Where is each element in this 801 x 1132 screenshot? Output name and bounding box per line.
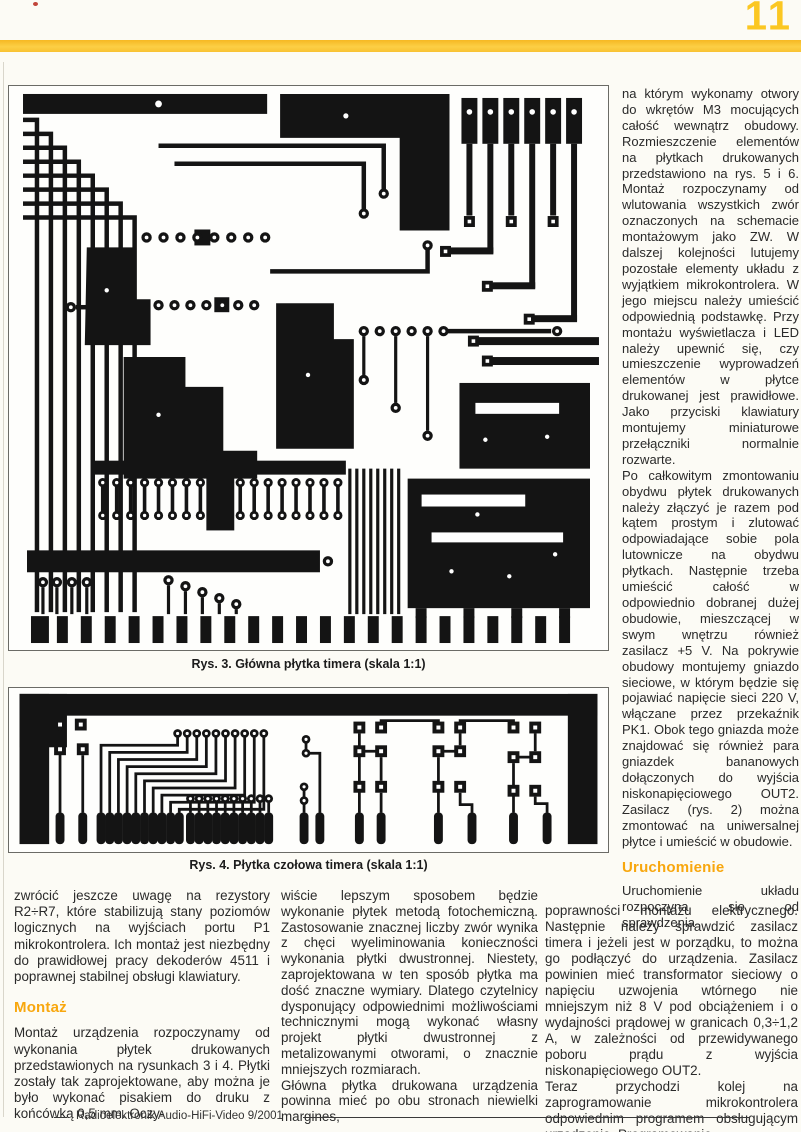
page-number: 11 [745, 0, 793, 39]
footer-text: Radioelektronik Audio-HiFi-Video 9/2001 [76, 1110, 283, 1122]
registration-mark [33, 2, 38, 6]
bottom-column-middle: wiście lepszym sposobem będzie wykonanie… [281, 888, 538, 1125]
bottom-left-paragraph-1: zwrócić jeszcze uwagę na rezystory R2÷R7… [14, 888, 270, 985]
pcb-artwork-rys4 [9, 688, 608, 852]
figure-caption-rys4: Rys. 4. Płytka czołowa timera (skala 1:1… [8, 858, 609, 872]
section-heading-montaz: Montaż [14, 1000, 270, 1016]
right-column-paragraph-1: na którym wykonamy otwory do wkrętów M3 … [622, 86, 799, 468]
pcb-figure-rys4 [8, 687, 609, 853]
scan-edge-line [3, 62, 4, 1117]
right-column: na którym wykonamy otwory do wkrętów M3 … [622, 86, 799, 931]
pcb-figure-rys3 [8, 85, 609, 651]
footer-rule [303, 1117, 750, 1118]
section-heading-uruchomienie: Uruchomienie [622, 860, 799, 876]
bottom-middle-paragraph-1: wiście lepszym sposobem będzie wykonanie… [281, 888, 538, 1078]
bottom-right-paragraph-2: Teraz przychodzi kolej na zaprogramowani… [545, 1079, 798, 1132]
figure-caption-rys3: Rys. 3. Główna płytka timera (skala 1:1) [8, 657, 609, 671]
bottom-column-right: poprawności montażu elektrycznego. Nastę… [545, 903, 798, 1132]
header-yellow-rule [0, 40, 801, 52]
bottom-left-paragraph-2: Montaż urządzenia rozpoczynamy od wykona… [14, 1025, 270, 1122]
bottom-column-left: zwrócić jeszcze uwagę na rezystory R2÷R7… [14, 888, 270, 1123]
magazine-page: 11 [0, 0, 801, 1132]
pcb-artwork-rys3 [9, 86, 608, 650]
bottom-right-paragraph-1: poprawności montażu elektrycznego. Nastę… [545, 903, 798, 1079]
right-column-paragraph-2: Po całkowitym zmontowaniu obydwu płytek … [622, 468, 799, 850]
footer-left-dash [54, 1117, 67, 1118]
